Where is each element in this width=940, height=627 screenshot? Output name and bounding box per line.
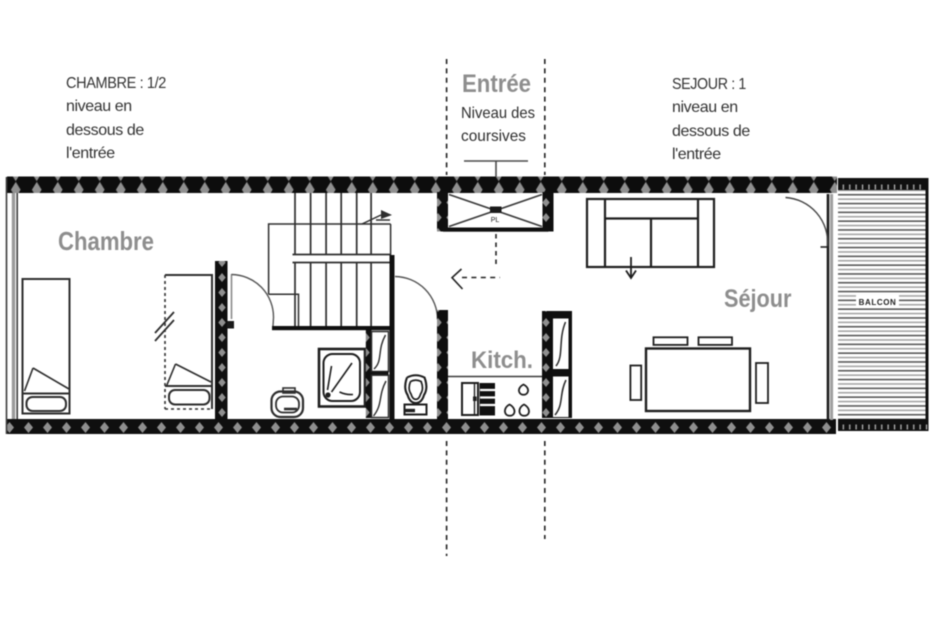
svg-text:Kitch.: Kitch.: [471, 347, 533, 374]
svg-text:l'entrée: l'entrée: [672, 146, 721, 163]
svg-text:CHAMBRE : 1/2: CHAMBRE : 1/2: [66, 75, 166, 92]
svg-text:dessous de: dessous de: [66, 122, 144, 139]
svg-text:PL: PL: [491, 217, 500, 224]
svg-text:niveau en: niveau en: [66, 98, 132, 115]
svg-text:coursives: coursives: [461, 128, 526, 145]
svg-text:l'entrée: l'entrée: [66, 145, 115, 162]
svg-text:niveau en: niveau en: [672, 99, 738, 116]
svg-text:dessous de: dessous de: [672, 123, 750, 140]
svg-text:Entrée: Entrée: [462, 70, 531, 98]
svg-text:SEJOUR : 1: SEJOUR : 1: [672, 76, 746, 93]
svg-text:Chambre: Chambre: [58, 226, 154, 256]
svg-text:Séjour: Séjour: [724, 285, 792, 313]
svg-text:Niveau des: Niveau des: [461, 105, 535, 122]
svg-text:BALCON: BALCON: [859, 298, 897, 307]
